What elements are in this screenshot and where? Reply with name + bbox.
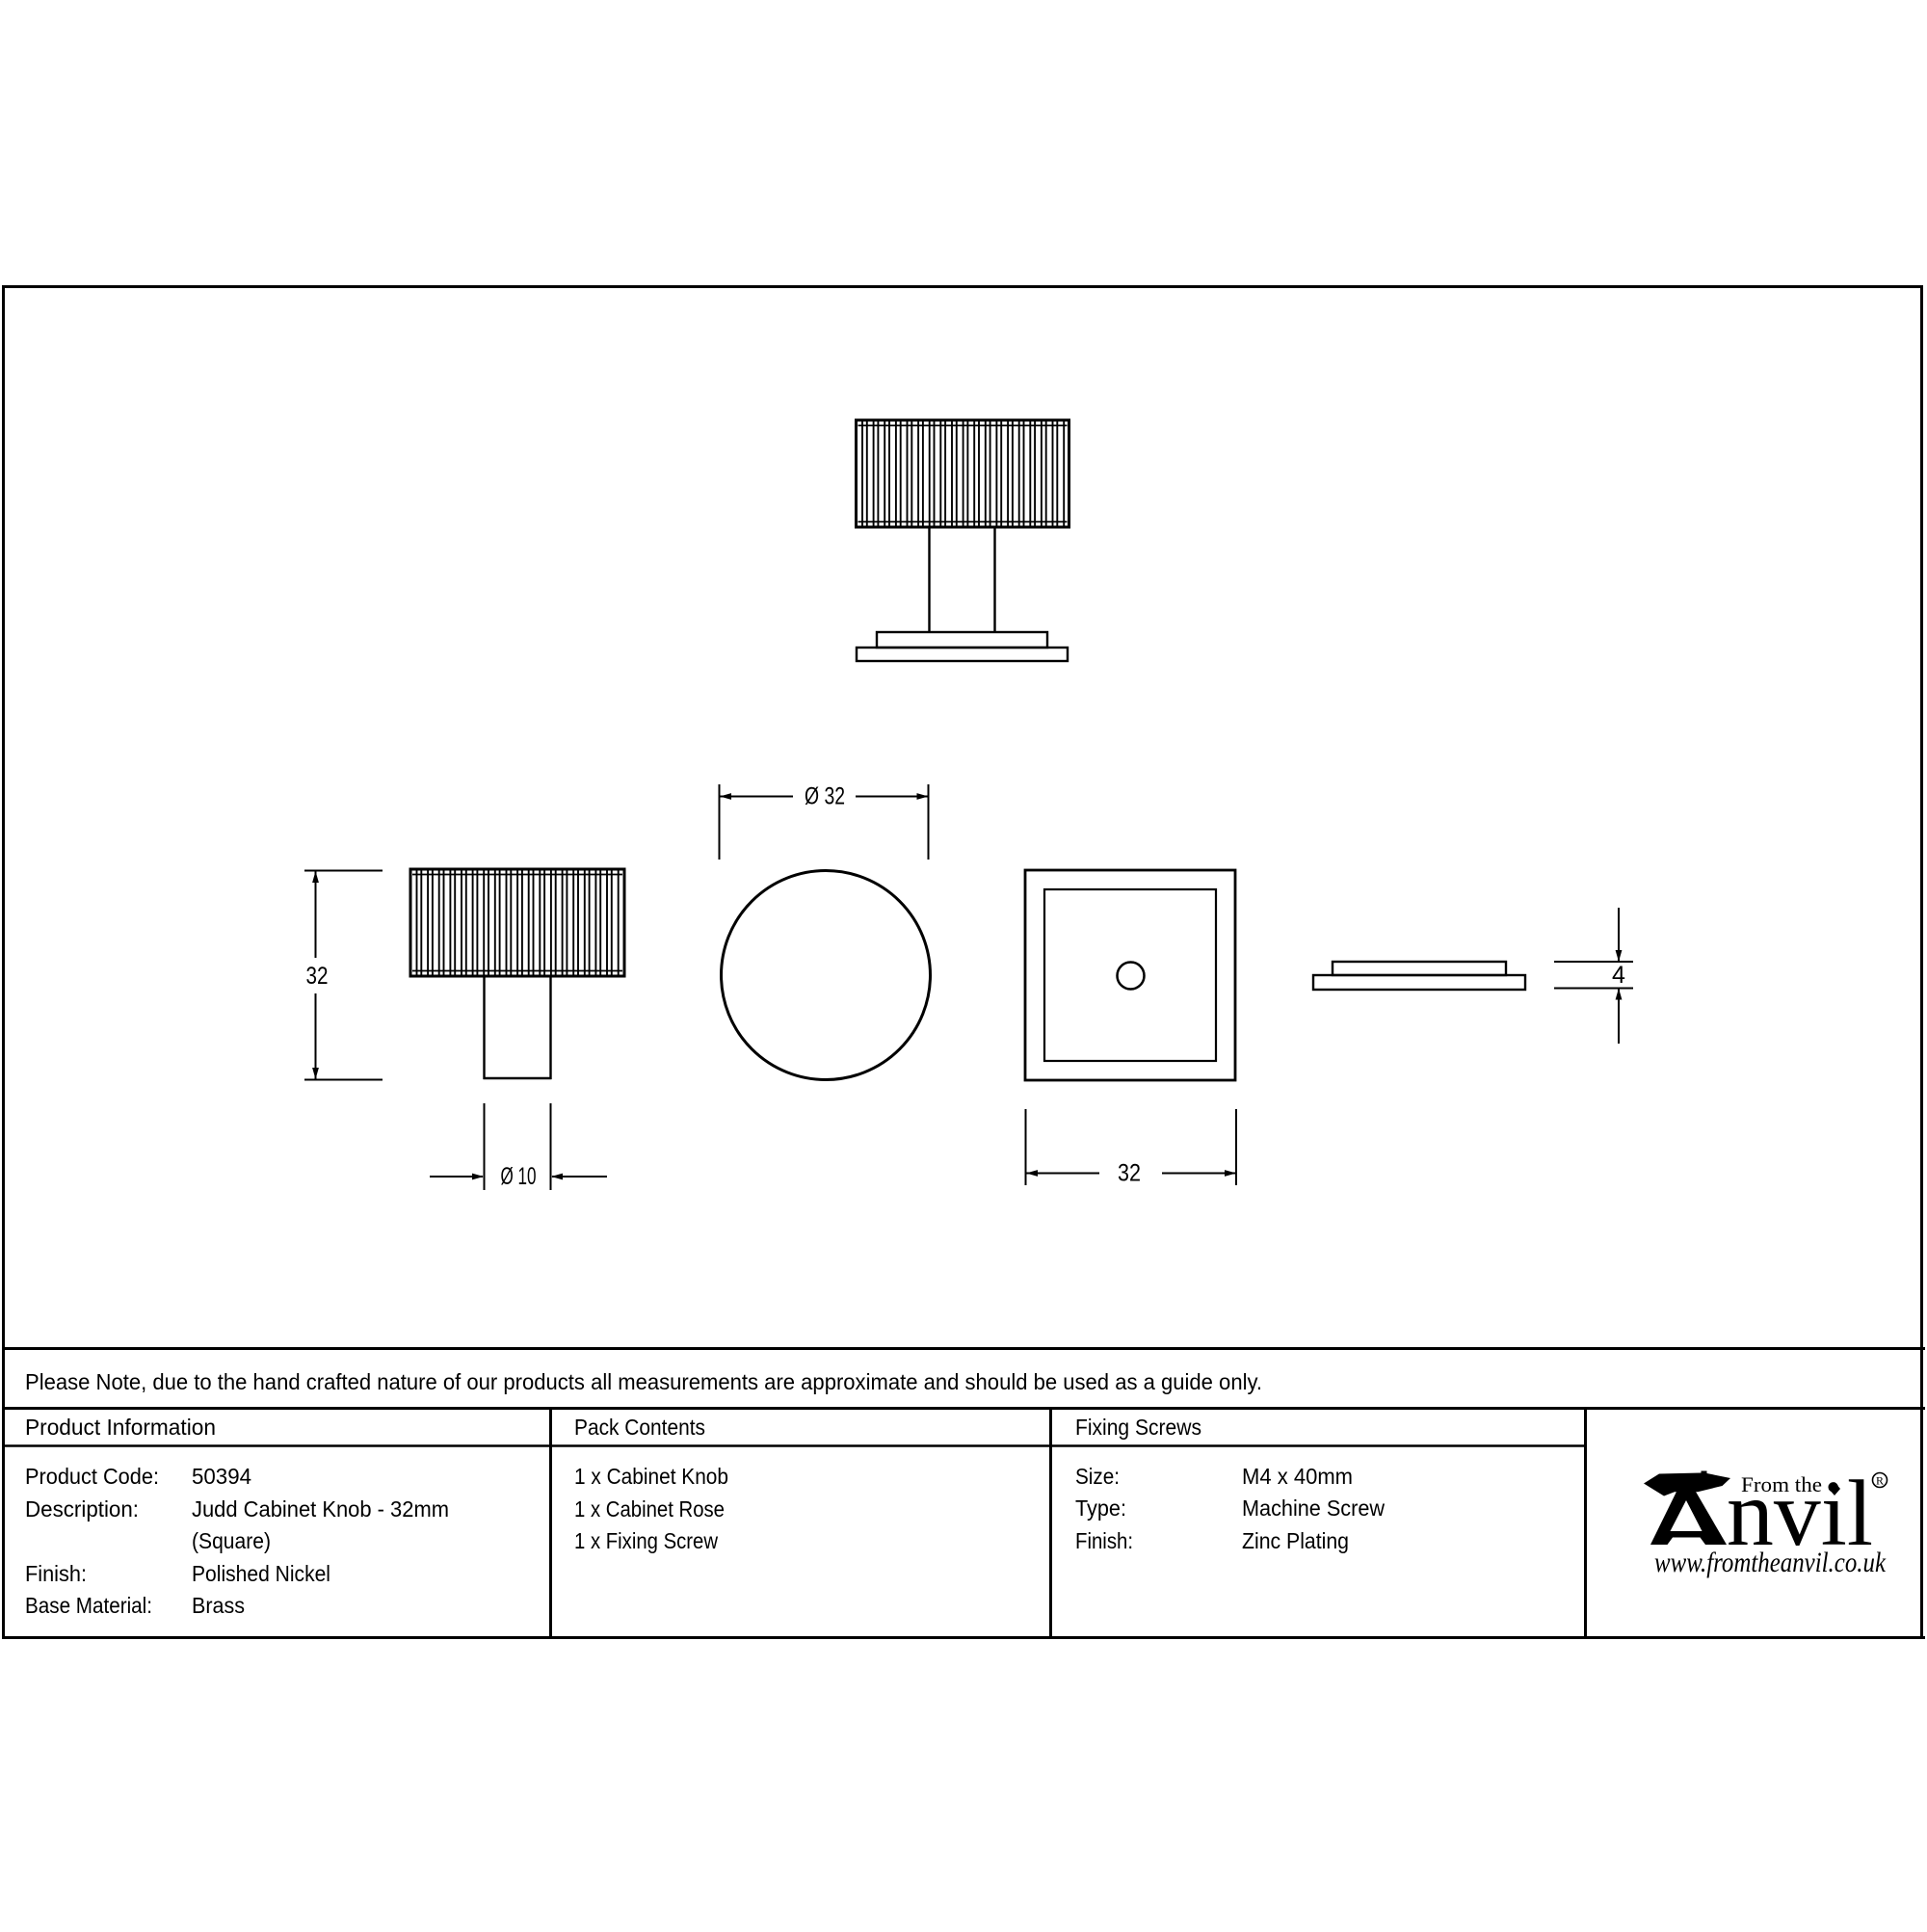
svg-text:Product Code:: Product Code: bbox=[25, 1464, 159, 1489]
svg-text:Ø 32: Ø 32 bbox=[805, 783, 845, 810]
svg-text:Base Material:: Base Material: bbox=[25, 1593, 152, 1618]
svg-text:Description:: Description: bbox=[25, 1496, 139, 1522]
svg-text:Size:: Size: bbox=[1075, 1464, 1120, 1489]
svg-text:1 x Cabinet Rose: 1 x Cabinet Rose bbox=[574, 1496, 725, 1522]
svg-text:www.fromtheanvil.co.uk: www.fromtheanvil.co.uk bbox=[1654, 1547, 1887, 1578]
svg-text:M4 x 40mm: M4 x 40mm bbox=[1242, 1464, 1353, 1489]
svg-text:Finish:: Finish: bbox=[1075, 1528, 1133, 1553]
svg-text:R: R bbox=[1876, 1474, 1884, 1488]
svg-text:Ø 10: Ø 10 bbox=[501, 1163, 537, 1190]
svg-text:1 x Cabinet Knob: 1 x Cabinet Knob bbox=[574, 1464, 728, 1489]
svg-text:32: 32 bbox=[306, 963, 329, 990]
svg-text:Fixing Screws: Fixing Screws bbox=[1075, 1415, 1201, 1440]
svg-text:32: 32 bbox=[1118, 1160, 1141, 1187]
svg-text:Finish:: Finish: bbox=[25, 1561, 87, 1586]
svg-text:(Square): (Square) bbox=[192, 1528, 271, 1553]
svg-text:Judd Cabinet Knob - 32mm: Judd Cabinet Knob - 32mm bbox=[192, 1496, 449, 1522]
svg-text:50394: 50394 bbox=[192, 1464, 251, 1489]
svg-text:Type:: Type: bbox=[1075, 1495, 1126, 1521]
svg-text:Machine Screw: Machine Screw bbox=[1242, 1495, 1385, 1521]
svg-text:Zinc Plating: Zinc Plating bbox=[1242, 1528, 1349, 1553]
svg-text:4: 4 bbox=[1612, 962, 1625, 989]
svg-text:Polished Nickel: Polished Nickel bbox=[192, 1561, 330, 1586]
svg-text:Please Note, due to the hand c: Please Note, due to the hand crafted nat… bbox=[25, 1369, 1262, 1394]
svg-text:Brass: Brass bbox=[192, 1593, 245, 1618]
svg-text:Product Information: Product Information bbox=[25, 1415, 216, 1440]
svg-text:Pack Contents: Pack Contents bbox=[574, 1415, 705, 1440]
svg-text:1 x Fixing Screw: 1 x Fixing Screw bbox=[574, 1528, 718, 1553]
